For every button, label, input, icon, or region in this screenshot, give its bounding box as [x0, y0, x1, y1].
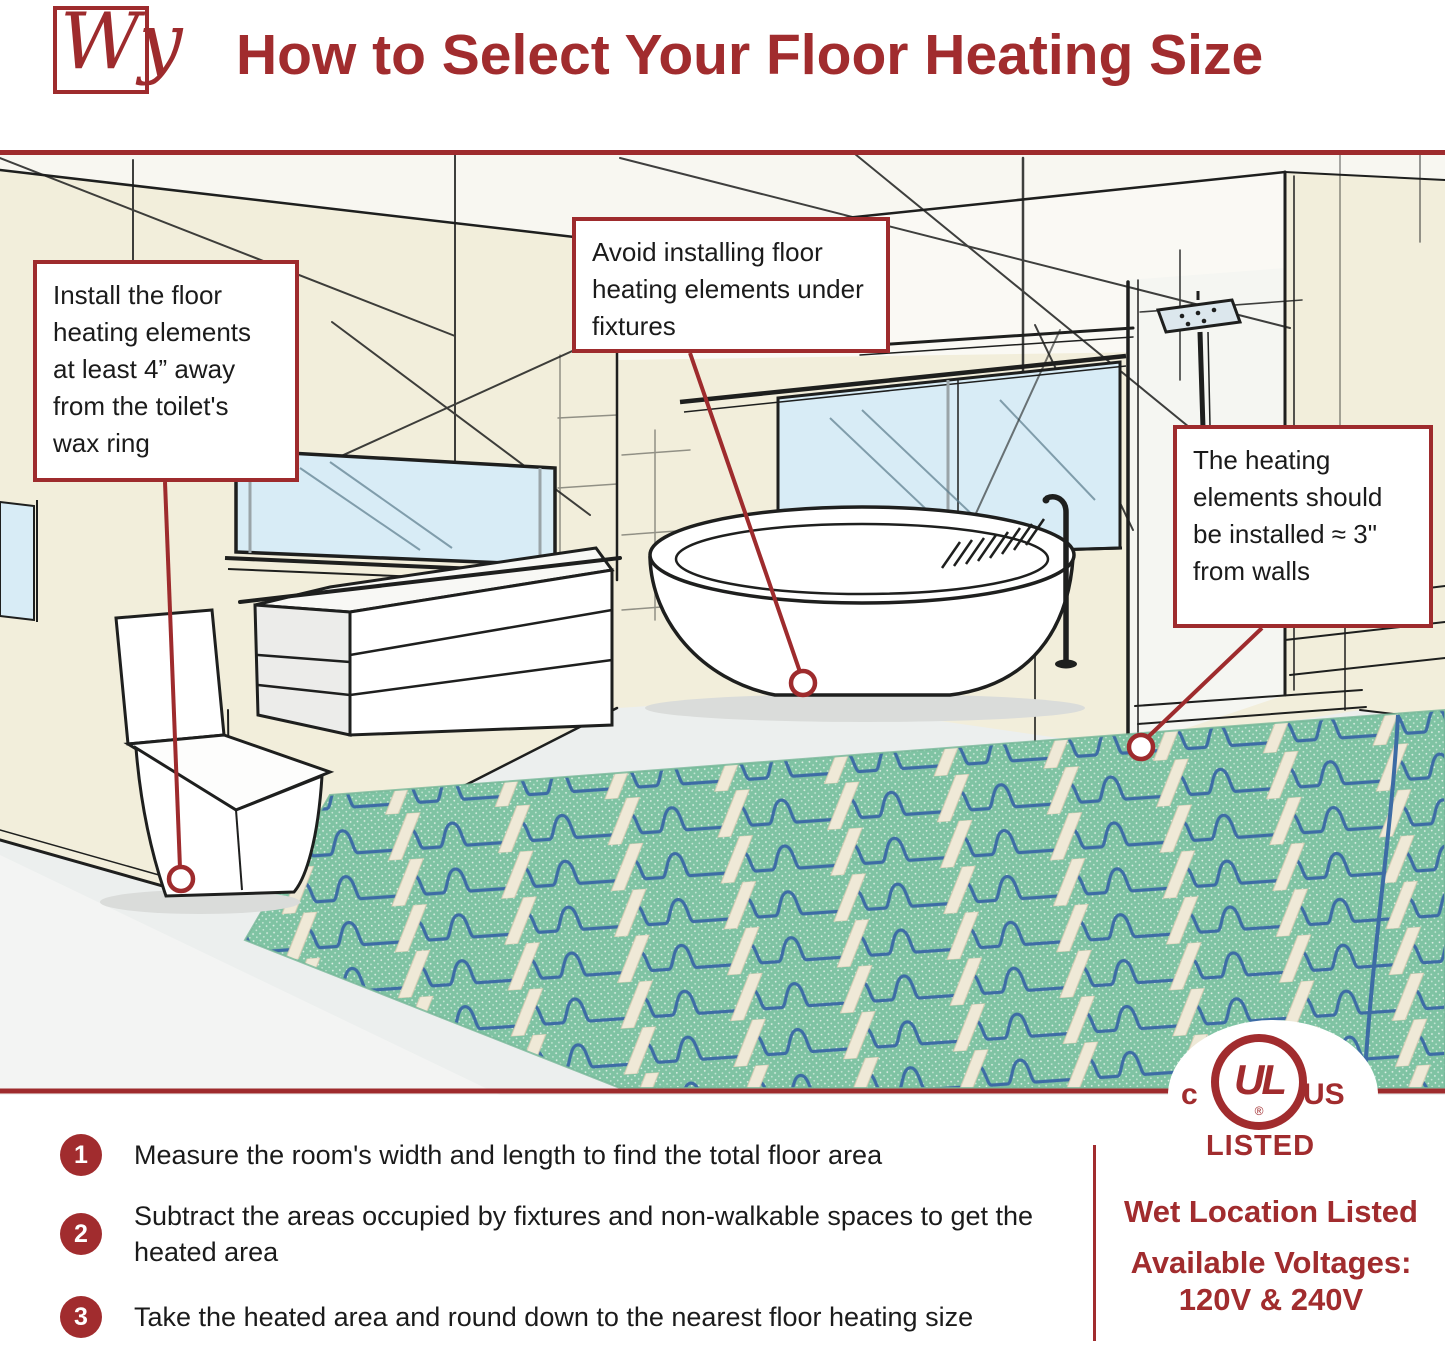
callout-toilet-clearance: Install the floor heating elements at le…	[33, 260, 299, 482]
voltages-info: Available Voltages: 120V & 240V	[1103, 1244, 1439, 1318]
footer-divider	[1093, 1145, 1096, 1341]
registered-trademark-icon: ®	[1219, 1104, 1299, 1118]
callout-text: Install the floor heating elements at le…	[53, 280, 251, 458]
left-edge-window	[0, 500, 37, 622]
callout-text: Avoid installing floor heating elements …	[592, 237, 864, 341]
step-text: Take the heated area and round down to t…	[134, 1299, 973, 1335]
step-text: Subtract the areas occupied by fixtures …	[134, 1198, 1034, 1270]
step-number-badge: 2	[60, 1213, 102, 1255]
ul-circle-icon: UL ®	[1211, 1034, 1307, 1130]
callout-text: The heating elements should be installed…	[1193, 445, 1382, 586]
ul-canada-mark: c	[1181, 1078, 1198, 1112]
infographic-page: Wy How to Select Your Floor Heating Size	[0, 0, 1445, 1348]
voltages-label: Available Voltages:	[1103, 1244, 1439, 1281]
step-item-1: 1 Measure the room's width and length to…	[60, 1134, 1060, 1176]
voltages-value: 120V & 240V	[1103, 1281, 1439, 1318]
step-number-badge: 3	[60, 1296, 102, 1338]
callout-wall-clearance: The heating elements should be installed…	[1173, 425, 1433, 628]
brand-logo-frame	[53, 6, 149, 94]
ul-letters: UL	[1219, 1056, 1299, 1104]
step-item-2: 2 Subtract the areas occupied by fixture…	[60, 1198, 1060, 1270]
callout-avoid-fixtures: Avoid installing floor heating elements …	[572, 217, 890, 353]
page-title: How to Select Your Floor Heating Size	[236, 22, 1426, 88]
ul-us-mark: US	[1303, 1078, 1345, 1112]
step-item-3: 3 Take the heated area and round down to…	[60, 1296, 1060, 1338]
ul-listed-icon: c UL ® US LISTED	[1163, 1028, 1358, 1163]
ul-listed-label: LISTED	[1163, 1130, 1358, 1163]
step-number-badge: 1	[60, 1134, 102, 1176]
step-text: Measure the room's width and length to f…	[134, 1137, 882, 1173]
wet-location-label: Wet Location Listed	[1103, 1194, 1439, 1230]
